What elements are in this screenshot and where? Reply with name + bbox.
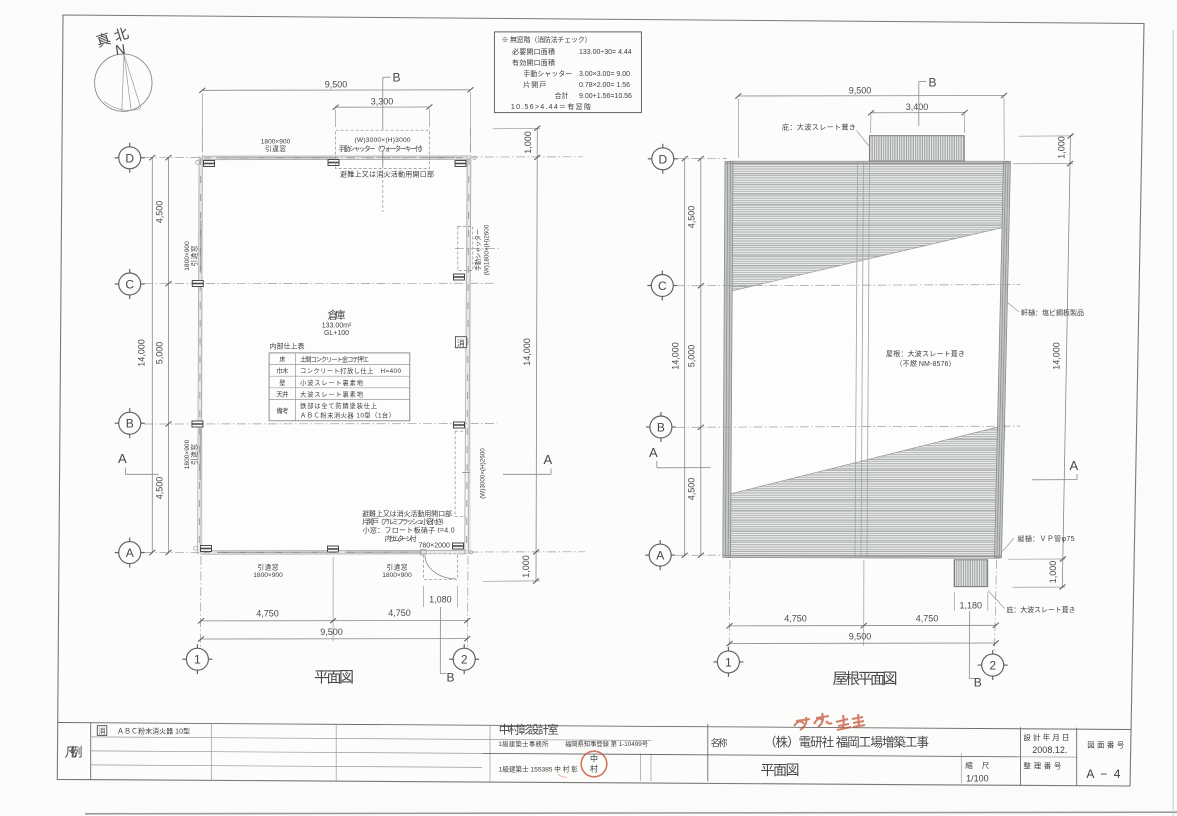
- svg-text:3,400: 3,400: [906, 102, 929, 112]
- svg-text:庇：大波スレート葺き: 庇：大波スレート葺き: [782, 122, 856, 131]
- svg-text:手動シャッター: 手動シャッター: [523, 69, 572, 78]
- svg-text:屋根平面図: 屋根平面図: [833, 671, 898, 688]
- svg-text:4,500: 4,500: [155, 201, 165, 224]
- svg-text:9,500: 9,500: [849, 631, 872, 641]
- svg-text:GL+100: GL+100: [324, 330, 349, 337]
- svg-text:天井: 天井: [276, 389, 288, 398]
- svg-text:(W)3000×(H)3000: (W)3000×(H)3000: [355, 137, 411, 144]
- svg-text:(W)1800×(H)2600: (W)1800×(H)2600: [484, 224, 491, 275]
- svg-text:C: C: [125, 278, 134, 292]
- svg-text:1級建築士事務所: 1級建築士事務所: [498, 739, 549, 748]
- svg-text:軒樋：塩ビ鋼板製品: 軒樋：塩ビ鋼板製品: [1021, 308, 1084, 317]
- svg-text:必要開口面積: 必要開口面積: [512, 47, 555, 56]
- svg-text:小窓：フロート板硝子 t=4.0: 小窓：フロート板硝子 t=4.0: [363, 526, 455, 535]
- svg-text:4,750: 4,750: [784, 614, 807, 624]
- svg-text:内部仕上表: 内部仕上表: [270, 342, 305, 351]
- svg-text:平面図: 平面図: [761, 762, 800, 778]
- svg-text:B: B: [974, 676, 982, 690]
- svg-text:引違窓: 引違窓: [258, 563, 279, 572]
- svg-text:5,000: 5,000: [155, 342, 165, 365]
- svg-text:（不燃 NM-8576）: （不燃 NM-8576）: [896, 359, 956, 368]
- svg-text:床: 床: [279, 355, 286, 364]
- svg-text:B: B: [126, 417, 134, 431]
- svg-text:133.00÷30= 4.44: 133.00÷30= 4.44: [579, 49, 632, 56]
- svg-text:2: 2: [989, 659, 996, 673]
- svg-text:手動シャッター: 手動シャッター: [473, 229, 482, 271]
- svg-text:避難上又は消火活動用開口部: 避難上又は消火活動用開口部: [362, 509, 452, 518]
- svg-text:ＡＢＣ粉末消火器 10型（1台）: ＡＢＣ粉末消火器 10型（1台）: [300, 411, 395, 420]
- svg-text:避難上又は消火活動用開口部: 避難上又は消火活動用開口部: [340, 170, 434, 179]
- svg-text:合計: 合計: [555, 91, 569, 100]
- svg-text:0.78×2.00= 1.56: 0.78×2.00= 1.56: [579, 82, 630, 89]
- svg-text:A − 4: A − 4: [1086, 767, 1120, 781]
- svg-text:片開戸: 片開戸: [523, 80, 546, 89]
- svg-text:2008.12.: 2008.12.: [1032, 745, 1067, 755]
- svg-text:4,500: 4,500: [155, 477, 165, 500]
- svg-text:1: 1: [725, 655, 732, 669]
- svg-text:小波スレート裏素地: 小波スレート裏素地: [300, 378, 364, 387]
- svg-text:中村彰設計室: 中村彰設計室: [499, 723, 559, 737]
- svg-text:1800×900: 1800×900: [184, 439, 191, 469]
- svg-text:中: 中: [590, 754, 598, 764]
- svg-text:4,750: 4,750: [388, 608, 411, 618]
- svg-text:14,000: 14,000: [671, 342, 681, 370]
- svg-text:1800×900: 1800×900: [261, 139, 291, 146]
- svg-text:1,080: 1,080: [429, 594, 452, 604]
- svg-text:有効開口面積: 有効開口面積: [512, 58, 555, 67]
- svg-text:設計年月日: 設計年月日: [1023, 732, 1069, 742]
- svg-text:B: B: [393, 71, 401, 85]
- svg-text:1800×900: 1800×900: [184, 241, 191, 271]
- svg-text:4,500: 4,500: [687, 478, 697, 501]
- svg-text:(W)3000×(H)2600: (W)3000×(H)2600: [480, 448, 487, 499]
- svg-text:133.00m²: 133.00m²: [322, 323, 352, 330]
- svg-text:倉庫: 倉庫: [328, 308, 347, 321]
- svg-text:大波スレート裏素地: 大波スレート裏素地: [300, 389, 364, 398]
- svg-text:1級建築士 155385 中 村 彰: 1級建築士 155385 中 村 彰: [499, 765, 578, 774]
- svg-text:A: A: [1070, 458, 1079, 473]
- svg-text:手動シャッター（ウォーターキー付）: 手動シャッター（ウォーターキー付）: [339, 144, 427, 153]
- svg-text:14,000: 14,000: [136, 339, 146, 367]
- svg-text:B: B: [929, 76, 937, 90]
- svg-text:A: A: [126, 546, 134, 560]
- svg-text:A: A: [118, 451, 127, 466]
- svg-text:備考: 備考: [276, 406, 288, 415]
- svg-text:1,000: 1,000: [521, 555, 531, 578]
- svg-text:1,180: 1,180: [960, 600, 983, 610]
- svg-text:4,750: 4,750: [916, 613, 939, 623]
- svg-text:内サムターン付: 内サムターン付: [385, 534, 417, 543]
- svg-text:5,000: 5,000: [687, 345, 697, 368]
- svg-text:9,500: 9,500: [325, 80, 348, 90]
- svg-text:鉄部は全て防錆塗装仕上: 鉄部は全て防錆塗装仕上: [300, 401, 377, 410]
- svg-text:A: A: [649, 445, 658, 460]
- svg-text:4,500: 4,500: [687, 206, 697, 229]
- svg-text:4,750: 4,750: [256, 608, 279, 618]
- svg-text:B: B: [447, 671, 455, 685]
- svg-text:※ 無窓階（消防法チェック）: ※ 無窓階（消防法チェック）: [502, 35, 592, 44]
- svg-text:コンクリート打放し仕上 H=400: コンクリート打放し仕上 H=400: [300, 366, 401, 375]
- svg-text:平面図: 平面図: [314, 669, 354, 686]
- svg-text:巾木: 巾木: [276, 366, 289, 375]
- svg-text:消: 消: [457, 338, 465, 348]
- svg-text:壁: 壁: [279, 378, 286, 387]
- svg-text:9.00+1.56=10.56: 9.00+1.56=10.56: [579, 93, 632, 100]
- svg-text:9,500: 9,500: [320, 627, 343, 637]
- svg-text:A: A: [544, 452, 553, 467]
- svg-text:1,000: 1,000: [1057, 136, 1067, 159]
- svg-text:14,000: 14,000: [1052, 342, 1062, 370]
- svg-text:1: 1: [194, 653, 201, 667]
- svg-text:片開戸（アルミフラッシュ 小窓付き）: 片開戸（アルミフラッシュ 小窓付き）: [362, 517, 448, 526]
- svg-text:14,000: 14,000: [522, 338, 532, 366]
- svg-text:1800×900: 1800×900: [382, 572, 412, 579]
- svg-text:10.56>4.44＝有窓階: 10.56>4.44＝有窓階: [511, 102, 591, 111]
- svg-text:1/100: 1/100: [966, 774, 989, 784]
- svg-text:3.00×3.00= 9.00: 3.00×3.00= 9.00: [579, 71, 630, 78]
- svg-text:9,500: 9,500: [849, 85, 872, 95]
- svg-text:（株）電研社 福岡工場増築工事: （株）電研社 福岡工場増築工事: [764, 735, 929, 750]
- svg-text:引違窓: 引違窓: [265, 144, 286, 153]
- svg-text:引違窓: 引違窓: [387, 563, 408, 572]
- svg-text:A: A: [656, 549, 664, 563]
- svg-text:屋根：大波スレート葺き: 屋根：大波スレート葺き: [886, 349, 965, 358]
- svg-text:庇：大波スレート葺き: 庇：大波スレート葺き: [1007, 605, 1076, 614]
- svg-text:3,300: 3,300: [371, 97, 394, 107]
- svg-text:縦樋：ＶＰ管φ75: 縦樋：ＶＰ管φ75: [1018, 534, 1075, 543]
- svg-text:1800×900: 1800×900: [253, 572, 283, 579]
- svg-text:引違窓: 引違窓: [190, 444, 199, 465]
- svg-text:名称: 名称: [711, 737, 728, 749]
- svg-text:C: C: [658, 279, 667, 293]
- svg-text:1,000: 1,000: [523, 131, 533, 154]
- svg-text:1,000: 1,000: [1048, 561, 1058, 584]
- svg-text:引違窓: 引違窓: [190, 245, 199, 266]
- svg-text:D: D: [125, 151, 134, 165]
- svg-text:消: 消: [99, 727, 106, 736]
- svg-text:B: B: [657, 421, 665, 435]
- svg-text:780×2000: 780×2000: [419, 542, 450, 549]
- svg-text:凡例: 凡例: [65, 746, 83, 760]
- svg-text:D: D: [658, 152, 667, 166]
- svg-text:土間コンクリート金コテ押エ: 土間コンクリート金コテ押エ: [300, 355, 369, 364]
- svg-text:ＡＢＣ粉末消火器 10型: ＡＢＣ粉末消火器 10型: [117, 726, 190, 735]
- svg-text:村: 村: [590, 764, 598, 774]
- svg-text:福岡県知事登録 第 1-10499号: 福岡県知事登録 第 1-10499号: [565, 739, 648, 748]
- svg-text:2: 2: [461, 653, 468, 667]
